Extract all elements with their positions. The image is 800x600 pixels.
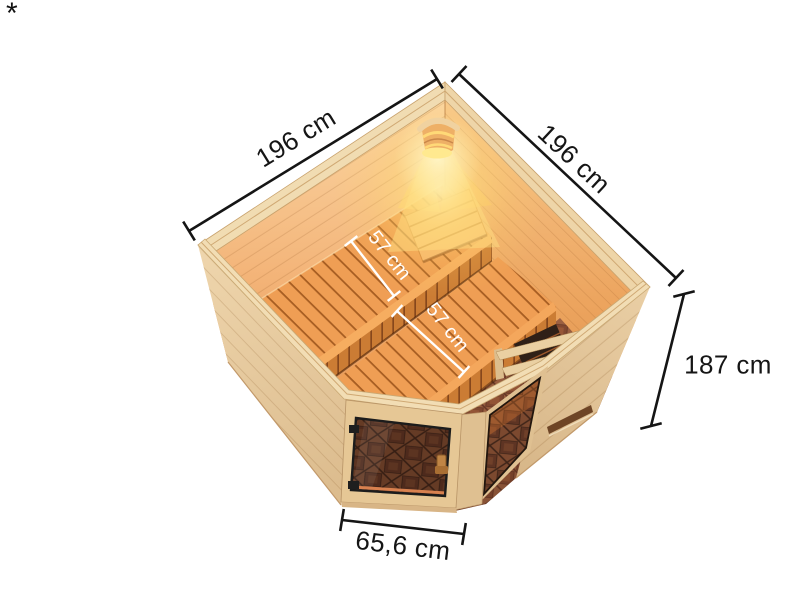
door-hinge-top — [349, 425, 359, 433]
height-dimension-label: 187 cm — [684, 350, 772, 381]
door-hinge-bottom — [348, 481, 359, 489]
sauna-dimension-figure: * 196 cm 196 cm 187 cm 57 cm 57 cm 65,6 … — [0, 0, 800, 600]
door-knob-base — [435, 466, 448, 474]
footnote-asterisk: * — [6, 0, 18, 31]
sauna-door — [341, 400, 462, 508]
sauna-illustration — [0, 0, 800, 600]
corner-lamp — [332, 82, 548, 298]
